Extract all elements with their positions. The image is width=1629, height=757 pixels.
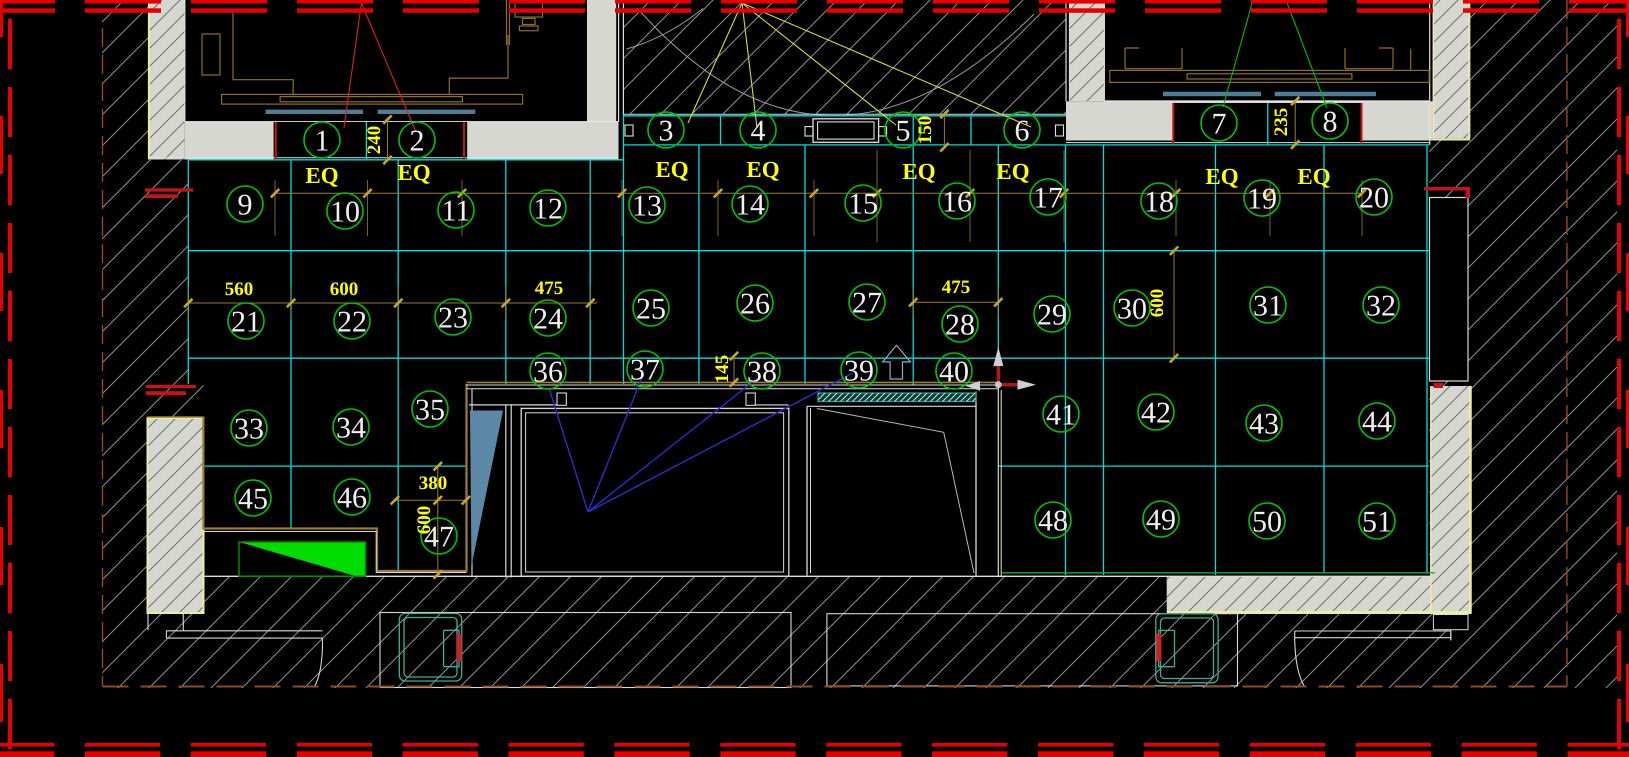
- svg-text:37: 37: [630, 354, 660, 387]
- svg-text:6: 6: [1015, 115, 1030, 148]
- svg-text:28: 28: [945, 309, 975, 342]
- svg-text:13: 13: [632, 190, 662, 223]
- svg-text:33: 33: [234, 413, 264, 446]
- svg-text:42: 42: [1141, 397, 1171, 430]
- svg-text:EQ: EQ: [746, 157, 779, 182]
- svg-text:39: 39: [844, 355, 874, 388]
- svg-text:EQ: EQ: [902, 159, 935, 184]
- svg-text:21: 21: [231, 306, 261, 339]
- svg-text:600: 600: [330, 279, 359, 300]
- svg-text:25: 25: [636, 293, 666, 326]
- svg-text:EQ: EQ: [1297, 164, 1330, 189]
- svg-text:34: 34: [336, 412, 366, 445]
- svg-text:150: 150: [915, 116, 936, 145]
- svg-text:36: 36: [533, 356, 563, 389]
- svg-text:10: 10: [330, 196, 360, 229]
- svg-text:16: 16: [942, 186, 972, 219]
- svg-text:EQ: EQ: [397, 160, 430, 185]
- svg-text:24: 24: [533, 303, 563, 336]
- svg-text:145: 145: [712, 355, 733, 384]
- svg-text:40: 40: [939, 356, 969, 389]
- svg-text:48: 48: [1038, 505, 1068, 538]
- svg-text:475: 475: [942, 277, 971, 298]
- svg-text:4: 4: [751, 115, 766, 148]
- svg-text:43: 43: [1249, 408, 1279, 441]
- svg-text:44: 44: [1362, 406, 1392, 439]
- svg-text:26: 26: [740, 288, 770, 321]
- svg-text:20: 20: [1359, 182, 1389, 215]
- svg-text:15: 15: [848, 188, 878, 221]
- svg-text:EQ: EQ: [996, 159, 1029, 184]
- svg-text:51: 51: [1362, 506, 1392, 539]
- svg-text:600: 600: [414, 506, 435, 535]
- svg-text:EQ: EQ: [1205, 164, 1238, 189]
- svg-text:32: 32: [1366, 290, 1396, 323]
- svg-text:38: 38: [747, 356, 777, 389]
- svg-text:29: 29: [1037, 299, 1067, 332]
- svg-text:35: 35: [415, 394, 445, 427]
- svg-text:45: 45: [238, 483, 268, 516]
- svg-text:46: 46: [337, 482, 367, 515]
- svg-text:560: 560: [225, 279, 254, 300]
- svg-text:50: 50: [1252, 506, 1282, 539]
- svg-text:19: 19: [1247, 183, 1277, 216]
- svg-text:240: 240: [364, 126, 385, 155]
- svg-text:23: 23: [438, 302, 468, 335]
- svg-text:18: 18: [1144, 186, 1174, 219]
- svg-text:600: 600: [1147, 289, 1168, 318]
- svg-text:EQ: EQ: [305, 163, 338, 188]
- svg-text:7: 7: [1212, 108, 1227, 141]
- svg-text:31: 31: [1253, 290, 1283, 323]
- svg-text:9: 9: [238, 189, 253, 222]
- svg-text:475: 475: [535, 278, 564, 299]
- svg-text:22: 22: [337, 306, 367, 339]
- svg-text:41: 41: [1046, 399, 1076, 432]
- svg-text:11: 11: [442, 195, 471, 228]
- svg-text:3: 3: [659, 115, 674, 148]
- svg-text:380: 380: [419, 473, 448, 494]
- svg-text:27: 27: [852, 287, 882, 320]
- svg-text:235: 235: [1271, 108, 1292, 137]
- svg-text:8: 8: [1323, 106, 1338, 139]
- svg-text:EQ: EQ: [655, 157, 688, 182]
- svg-text:1: 1: [315, 125, 330, 158]
- svg-text:49: 49: [1146, 504, 1176, 537]
- svg-text:14: 14: [735, 189, 765, 222]
- svg-text:30: 30: [1117, 293, 1147, 326]
- svg-text:2: 2: [410, 125, 425, 158]
- svg-text:5: 5: [896, 115, 911, 148]
- svg-text:12: 12: [533, 193, 563, 226]
- svg-text:17: 17: [1033, 182, 1063, 215]
